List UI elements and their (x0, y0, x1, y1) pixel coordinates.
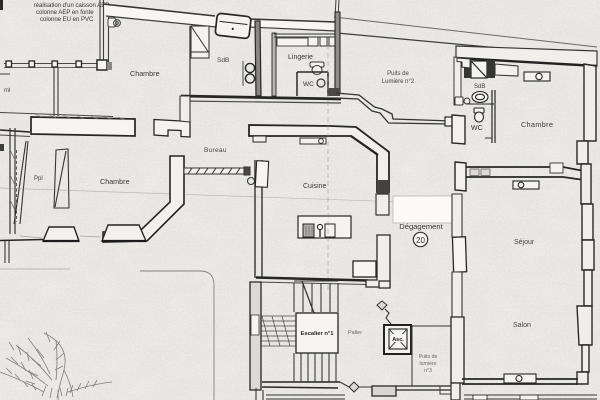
svg-text:colonne AEP en fonte: colonne AEP en fonte (36, 10, 94, 16)
svg-text:réalisation d'un caisson AEP: réalisation d'un caisson AEP (32, 3, 109, 9)
svg-text:Lingerie: Lingerie (288, 54, 313, 61)
svg-text:Chambre: Chambre (521, 120, 553, 129)
svg-text:WC: WC (471, 125, 483, 132)
svg-text:ml: ml (4, 88, 10, 94)
svg-text:SdB: SdB (474, 84, 485, 90)
svg-text:Séjour: Séjour (514, 239, 535, 246)
svg-text:Dégagement: Dégagement (399, 222, 443, 231)
svg-text:Chambre: Chambre (100, 177, 130, 186)
svg-text:Salon: Salon (513, 322, 531, 329)
svg-text:Puits de: Puits de (387, 71, 409, 77)
svg-text:n°3: n°3 (424, 368, 432, 374)
svg-text:20: 20 (416, 236, 425, 245)
svg-text:WC: WC (303, 81, 314, 88)
svg-text:Palier: Palier (348, 330, 362, 336)
svg-text:colonne EU en PVC: colonne EU en PVC (40, 17, 94, 23)
svg-text:Asc.: Asc. (392, 337, 404, 343)
svg-text:Chambre: Chambre (130, 69, 160, 78)
svg-text:Cuisine: Cuisine (303, 183, 326, 190)
svg-text:lumière: lumière (419, 361, 436, 367)
svg-text:Ppl: Ppl (34, 176, 43, 182)
svg-text:Bureau: Bureau (204, 147, 227, 154)
svg-text:Puits de: Puits de (419, 354, 438, 360)
svg-text:Lumière n°2: Lumière n°2 (382, 79, 415, 85)
svg-text:Escalier n°1: Escalier n°1 (301, 331, 335, 337)
svg-text:SdB: SdB (217, 57, 229, 64)
